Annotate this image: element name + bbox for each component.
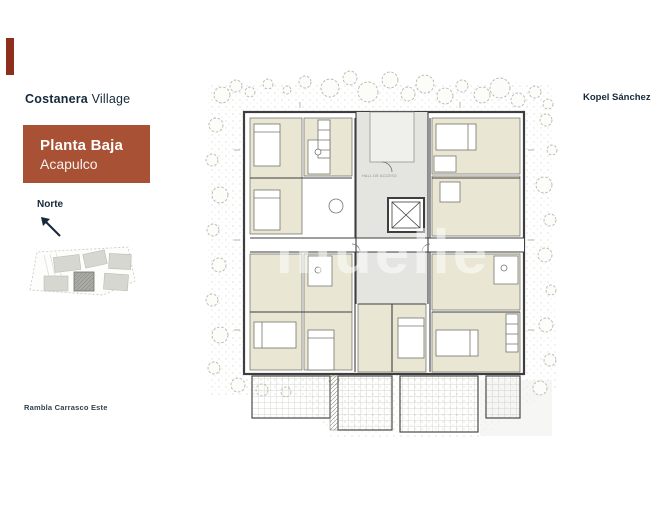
brand-name-bold: Costanera xyxy=(25,92,88,106)
key-plan-highlighted-building xyxy=(74,272,94,291)
title-card: Planta Baja Acapulco xyxy=(23,125,150,183)
north-arrow-icon xyxy=(36,212,70,242)
page-title: Planta Baja xyxy=(40,137,140,156)
floorplan-sheet: HALL DE ACCESO xyxy=(0,0,660,510)
watermark: muelle xyxy=(276,218,490,287)
key-site-plan xyxy=(24,243,140,299)
brand-name-light: Village xyxy=(92,92,131,106)
page-subtitle: Acapulco xyxy=(40,156,140,174)
hall-label: HALL DE ACCESO xyxy=(362,174,397,178)
entry-vestibule xyxy=(370,112,414,162)
street-name: Rambla Carrasco Este xyxy=(24,403,108,412)
brand-mark xyxy=(6,38,14,75)
architect-name: Kopel Sánchez xyxy=(583,92,651,103)
north-label: Norte xyxy=(37,199,63,210)
brand-name: Costanera Village xyxy=(25,92,130,106)
